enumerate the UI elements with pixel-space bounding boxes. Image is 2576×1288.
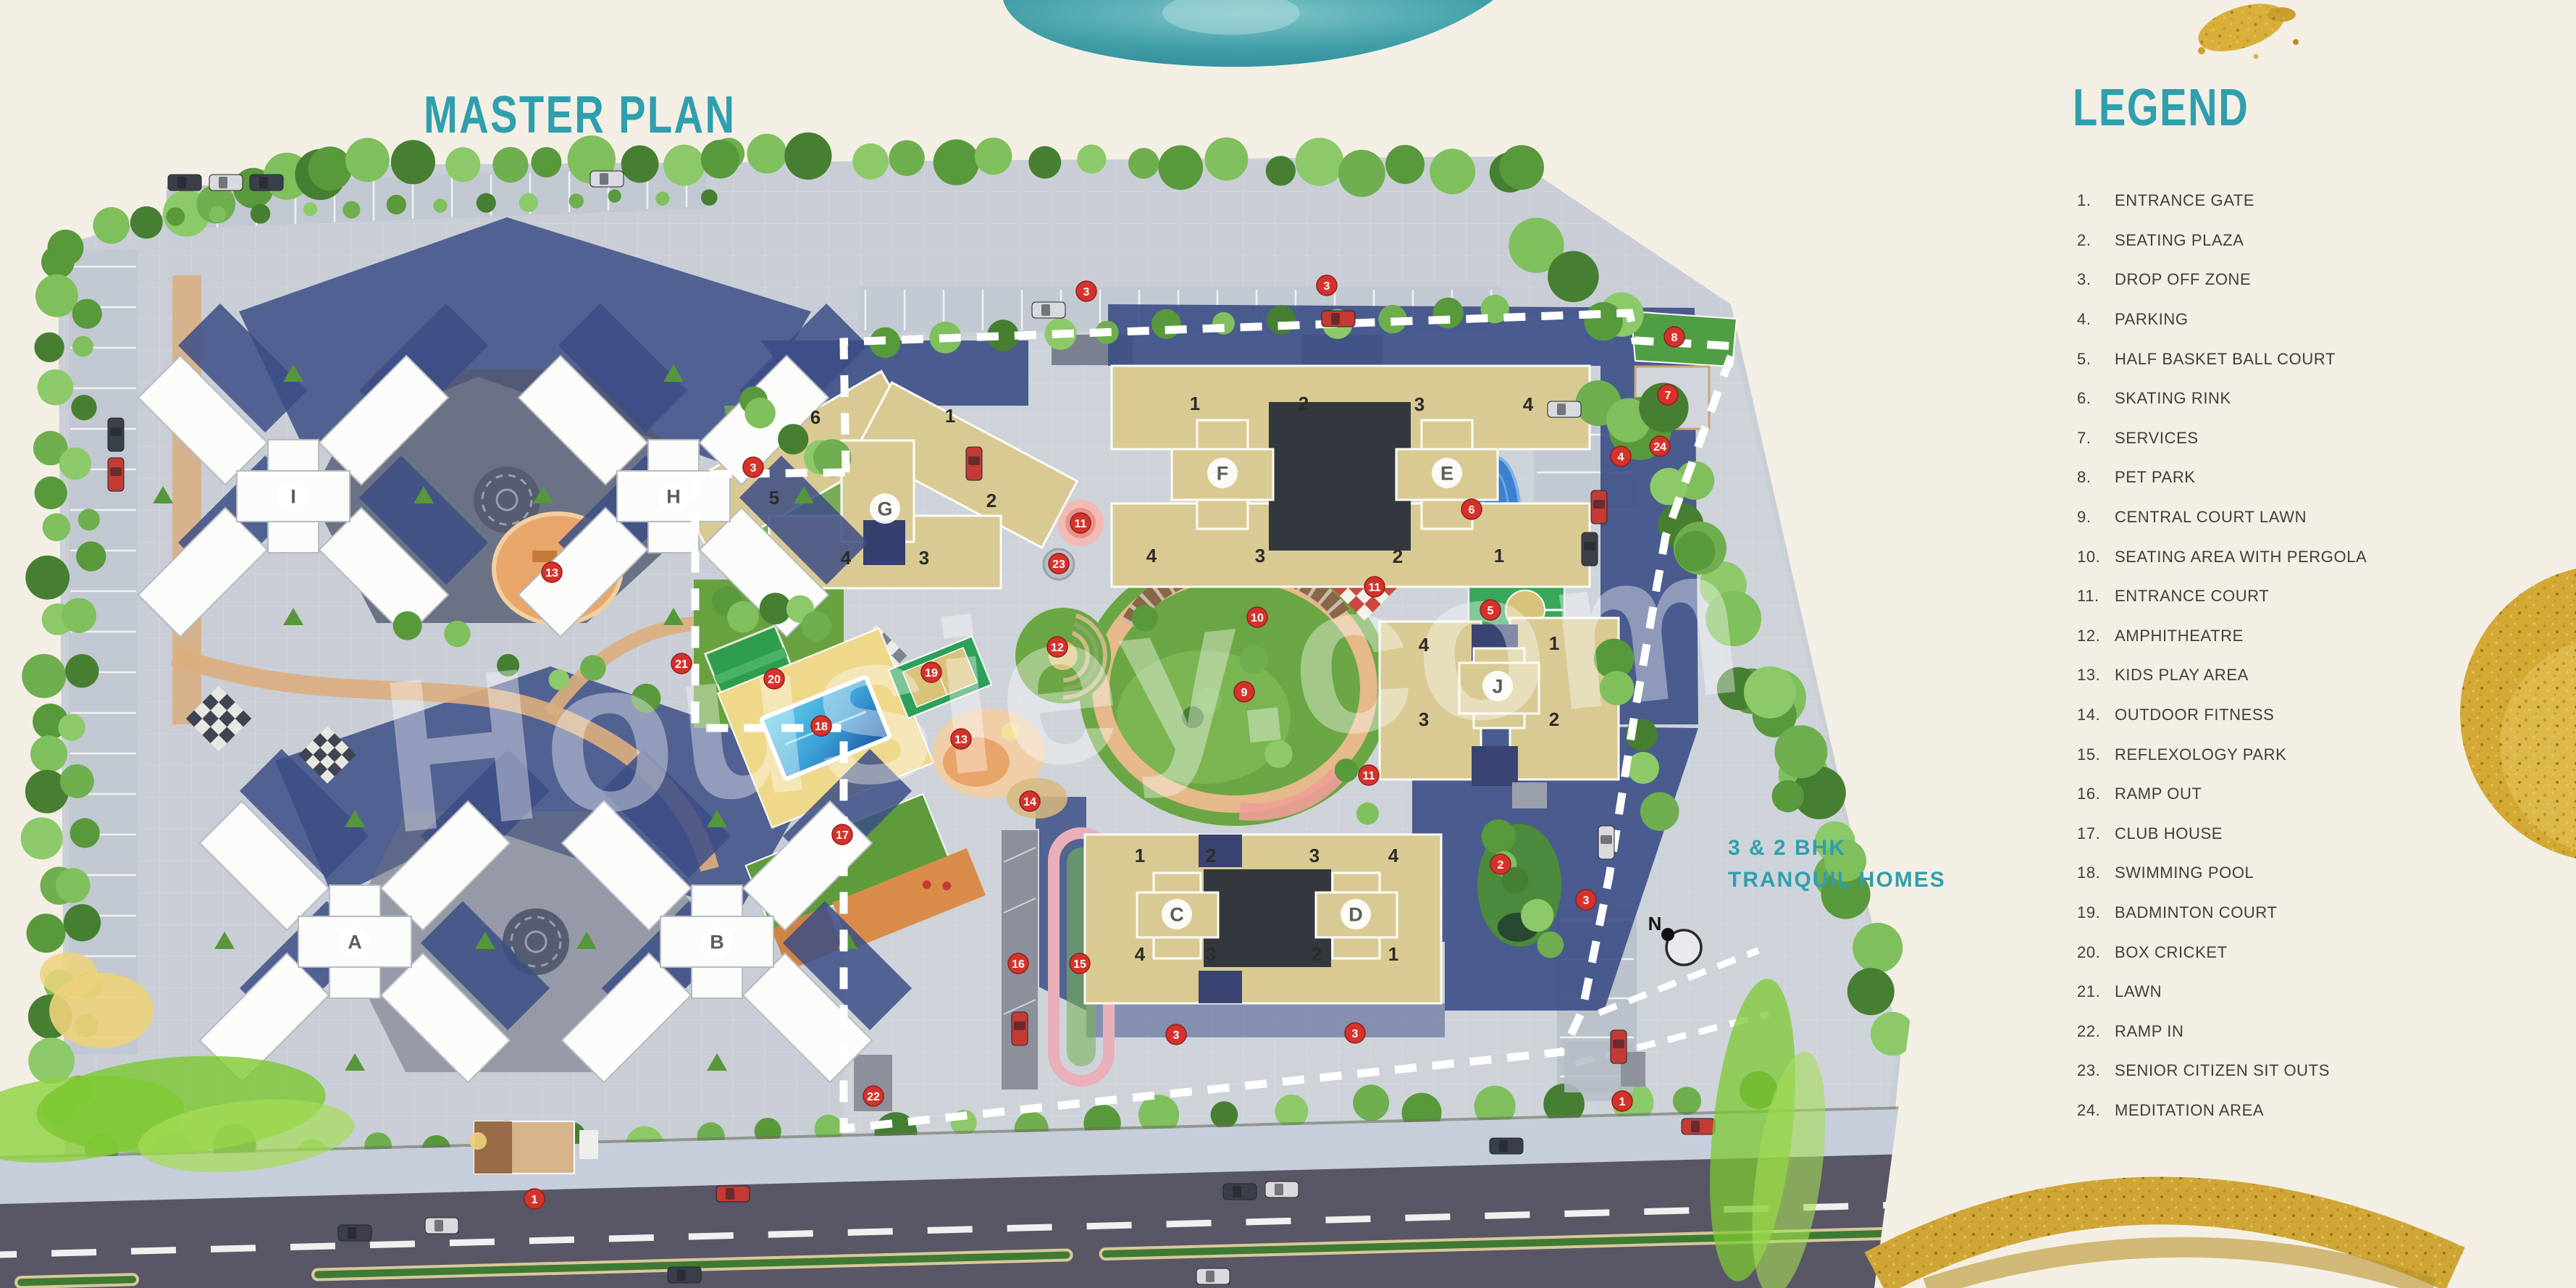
map-marker-13: 13 xyxy=(542,562,562,582)
map-marker-23: 23 xyxy=(1049,553,1069,574)
tree xyxy=(655,192,669,206)
tree xyxy=(21,817,63,859)
svg-text:11: 11 xyxy=(1075,518,1087,530)
tree xyxy=(1151,309,1181,339)
map-marker-14: 14 xyxy=(1020,791,1040,811)
map-marker-3: 3 xyxy=(1345,1023,1365,1043)
tree xyxy=(251,204,270,223)
svg-text:16: 16 xyxy=(1012,958,1025,971)
wing-number-label: 1 xyxy=(1135,845,1145,866)
car xyxy=(668,1267,701,1283)
svg-text:14: 14 xyxy=(1023,796,1036,808)
tree xyxy=(30,735,67,772)
tree xyxy=(22,654,66,698)
car xyxy=(1032,302,1065,318)
building-label-I: I xyxy=(278,481,309,511)
wing-number-label: 3 xyxy=(1419,708,1429,730)
tree xyxy=(25,556,70,600)
svg-text:2: 2 xyxy=(1498,859,1504,871)
tree xyxy=(1640,792,1679,831)
map-marker-13: 13 xyxy=(951,729,971,749)
tree xyxy=(975,138,1012,175)
car xyxy=(1223,1184,1256,1200)
tree xyxy=(70,818,100,848)
tree xyxy=(78,509,100,530)
tree xyxy=(35,275,78,317)
car xyxy=(250,175,283,191)
tree xyxy=(492,147,528,183)
tree xyxy=(28,1037,75,1084)
tree xyxy=(621,146,659,183)
building-label-B: B xyxy=(702,927,732,957)
tree xyxy=(93,207,130,244)
tree xyxy=(345,138,390,182)
tree xyxy=(1847,968,1895,1015)
car xyxy=(1265,1182,1299,1197)
map-marker-8: 8 xyxy=(1664,327,1685,347)
legend-panel: LEGEND 1.ENTRANCE GATE 2.SEATING PLAZA 3… xyxy=(2073,78,2551,138)
car xyxy=(425,1218,458,1234)
phase-label-line1: 3 & 2 BHK xyxy=(1728,836,1846,860)
wing-number-label: 3 xyxy=(1309,845,1320,866)
building-label-C: C xyxy=(1162,899,1192,929)
tree xyxy=(445,147,480,182)
legend-item: 4.PARKING xyxy=(2077,300,2541,340)
svg-text:I: I xyxy=(290,486,296,508)
wing-number-label: 1 xyxy=(1388,943,1398,965)
map-marker-24: 24 xyxy=(1650,436,1670,456)
car xyxy=(590,171,624,187)
svg-text:3: 3 xyxy=(1324,280,1330,293)
svg-text:19: 19 xyxy=(925,667,938,679)
legend-title: LEGEND xyxy=(2073,78,2446,138)
map-marker-9: 9 xyxy=(1234,682,1254,702)
legend-item: 23.SENIOR CITIZEN SIT OUTS xyxy=(2077,1051,2541,1091)
car xyxy=(1196,1268,1230,1284)
tree xyxy=(56,868,91,903)
tree xyxy=(43,514,71,542)
wing-number-label: 5 xyxy=(769,487,779,509)
tree xyxy=(60,764,94,798)
tree xyxy=(1159,146,1204,191)
tree xyxy=(62,598,96,633)
map-marker-1: 1 xyxy=(1612,1091,1632,1111)
wing-number-label: 4 xyxy=(1135,943,1146,965)
map-marker-2: 2 xyxy=(1490,854,1511,874)
legend-item: 13.KIDS PLAY AREA xyxy=(2077,656,2541,695)
legend-item: 22.RAMP IN xyxy=(2077,1011,2541,1051)
map-marker-4: 4 xyxy=(1611,446,1631,467)
tree xyxy=(72,299,102,329)
car xyxy=(209,175,243,191)
svg-text:4: 4 xyxy=(1618,451,1624,464)
wing-number-label: 6 xyxy=(810,406,821,428)
tree xyxy=(59,448,91,480)
wing-number-label: 2 xyxy=(1393,545,1403,567)
map-marker-22: 22 xyxy=(863,1086,884,1106)
map-marker-3: 3 xyxy=(743,457,763,477)
svg-text:12: 12 xyxy=(1051,642,1064,654)
wing-number-label: 1 xyxy=(945,405,955,427)
tree xyxy=(1673,1087,1701,1115)
wing-number-label: 4 xyxy=(1523,393,1534,415)
legend-item: 20.BOX CRICKET xyxy=(2077,932,2541,972)
tree xyxy=(477,193,496,213)
svg-text:15: 15 xyxy=(1073,958,1086,971)
legend-item: 6.SKATING RINK xyxy=(2077,379,2541,419)
tree xyxy=(1385,145,1425,184)
tree xyxy=(1205,138,1249,181)
car xyxy=(716,1186,750,1202)
svg-text:24: 24 xyxy=(1653,441,1666,453)
tree xyxy=(27,913,66,953)
tree xyxy=(778,424,808,454)
tree xyxy=(1266,156,1296,185)
svg-text:1: 1 xyxy=(532,1194,538,1206)
legend-item: 24.MEDITATION AREA xyxy=(2077,1091,2541,1131)
tree xyxy=(1296,138,1344,186)
building-label-A: A xyxy=(340,927,370,957)
tree xyxy=(130,206,163,239)
master-plan-page: Housiey.com N 3 & 2 BHK TRANQUIL HOMES 6… xyxy=(0,0,2576,1288)
compass-n-label: N xyxy=(1648,913,1662,934)
map-marker-19: 19 xyxy=(921,662,941,682)
map-marker-15: 15 xyxy=(1070,953,1090,974)
map-marker-3: 3 xyxy=(1576,890,1596,910)
map-marker-10: 10 xyxy=(1247,607,1267,627)
map-marker-16: 16 xyxy=(1008,953,1028,974)
legend-list: 1.ENTRANCE GATE 2.SEATING PLAZA 3.DROP O… xyxy=(2077,181,2541,1130)
wing-number-label: 3 xyxy=(1206,943,1216,965)
tree xyxy=(72,336,93,357)
svg-text:E: E xyxy=(1440,463,1453,485)
tree xyxy=(852,143,889,180)
legend-item: 3.DROP OFF ZONE xyxy=(2077,260,2541,300)
svg-text:3: 3 xyxy=(1352,1028,1359,1040)
car xyxy=(1598,826,1614,859)
phase-label-line2: TRANQUIL HOMES xyxy=(1728,868,1946,892)
map-marker-11: 11 xyxy=(1070,513,1091,533)
tree xyxy=(1853,923,1902,973)
tree xyxy=(38,369,74,406)
tree xyxy=(303,202,317,216)
wing-number-label: 3 xyxy=(1414,393,1425,415)
wing-number-label: 1 xyxy=(1494,545,1504,566)
page-title: MASTER PLAN xyxy=(424,85,736,145)
legend-item: 15.REFLEXOLOGY PARK xyxy=(2077,735,2541,774)
legend-item: 1.ENTRANCE GATE xyxy=(2077,181,2541,221)
building-label-E: E xyxy=(1432,458,1462,488)
tree xyxy=(308,146,352,191)
tree xyxy=(167,207,185,226)
map-marker-12: 12 xyxy=(1047,637,1067,657)
tree xyxy=(1584,302,1622,340)
tree xyxy=(433,198,447,212)
svg-text:11: 11 xyxy=(1369,582,1381,594)
legend-item: 18.SWIMMING POOL xyxy=(2077,853,2541,893)
tree xyxy=(71,395,96,420)
svg-text:13: 13 xyxy=(955,734,968,746)
tree xyxy=(608,190,621,203)
tree xyxy=(1499,145,1544,190)
car xyxy=(1548,401,1581,417)
wing-number-label: 2 xyxy=(1299,393,1309,414)
svg-text:6: 6 xyxy=(1469,504,1475,517)
svg-text:8: 8 xyxy=(1671,332,1678,344)
car xyxy=(1012,1012,1028,1045)
tree xyxy=(343,201,360,219)
wing-number-label: 2 xyxy=(1549,708,1559,730)
map-marker-3: 3 xyxy=(1076,281,1096,301)
wing-number-label: 1 xyxy=(1549,632,1559,654)
building-label-H: H xyxy=(658,481,689,511)
tree xyxy=(1430,149,1475,194)
legend-item: 17.CLUB HOUSE xyxy=(2077,814,2541,854)
map-marker-6: 6 xyxy=(1461,499,1482,519)
building-label-J: J xyxy=(1482,671,1513,701)
tree xyxy=(391,140,435,184)
legend-item: 5.HALF BASKET BALL COURT xyxy=(2077,339,2541,379)
tree xyxy=(519,193,538,212)
svg-text:3: 3 xyxy=(1083,286,1090,298)
wing-number-label: 4 xyxy=(841,547,852,569)
map-marker-17: 17 xyxy=(832,824,852,845)
tree xyxy=(41,246,75,279)
tree xyxy=(76,541,106,571)
car xyxy=(1611,1030,1627,1063)
tree xyxy=(1772,780,1804,812)
wing-number-label: 3 xyxy=(919,547,929,569)
map-marker-1: 1 xyxy=(524,1189,545,1209)
tree xyxy=(889,141,924,176)
building-label-D: D xyxy=(1341,899,1371,929)
svg-text:20: 20 xyxy=(768,674,781,686)
tree xyxy=(744,398,776,429)
tree xyxy=(701,189,718,206)
map-marker-5: 5 xyxy=(1480,600,1501,620)
car xyxy=(338,1225,372,1241)
building-label-G: G xyxy=(870,493,900,524)
tree xyxy=(209,206,226,222)
svg-text:J: J xyxy=(1492,676,1503,698)
svg-text:H: H xyxy=(666,486,681,508)
svg-text:A: A xyxy=(348,932,362,953)
tree xyxy=(1353,1084,1389,1121)
map-marker-3: 3 xyxy=(1317,275,1337,296)
wing-number-label: 4 xyxy=(1146,545,1157,566)
tree xyxy=(34,333,64,362)
wing-number-label: 2 xyxy=(1206,845,1216,866)
building-label-F: F xyxy=(1207,458,1238,488)
svg-text:G: G xyxy=(877,498,892,520)
tree xyxy=(1482,819,1516,853)
car xyxy=(108,418,124,451)
tree xyxy=(747,134,787,174)
svg-text:9: 9 xyxy=(1241,687,1248,699)
legend-item: 11.ENTRANCE COURT xyxy=(2077,577,2541,616)
tree xyxy=(35,477,67,509)
tree xyxy=(387,195,406,214)
legend-item: 9.CENTRAL COURT LAWN xyxy=(2077,498,2541,538)
tree xyxy=(65,654,98,687)
wing-number-label: 4 xyxy=(1419,634,1430,656)
svg-text:21: 21 xyxy=(675,658,688,671)
tree xyxy=(569,193,584,208)
tree xyxy=(1356,803,1379,825)
tree xyxy=(1028,146,1061,179)
tree xyxy=(1128,148,1159,179)
car xyxy=(1682,1118,1715,1134)
svg-text:17: 17 xyxy=(836,829,849,842)
tree xyxy=(64,904,101,941)
map-marker-11: 11 xyxy=(1359,765,1379,785)
legend-item: 16.RAMP OUT xyxy=(2077,774,2541,814)
svg-text:11: 11 xyxy=(1363,770,1375,782)
tree xyxy=(1774,725,1827,778)
tree xyxy=(701,140,740,179)
map-marker-7: 7 xyxy=(1658,385,1678,405)
wing-number-label: 1 xyxy=(1190,393,1200,414)
tree xyxy=(934,139,979,185)
legend-item: 19.BADMINTON COURT xyxy=(2077,893,2541,933)
tree xyxy=(1521,899,1553,932)
tree xyxy=(531,147,561,177)
svg-text:13: 13 xyxy=(545,567,558,580)
svg-text:3: 3 xyxy=(1583,895,1590,907)
car xyxy=(1490,1138,1523,1154)
legend-item: 10.SEATING AREA WITH PERGOLA xyxy=(2077,537,2541,577)
map-marker-3: 3 xyxy=(1166,1024,1186,1045)
svg-text:D: D xyxy=(1348,904,1363,926)
map-marker-20: 20 xyxy=(764,669,784,689)
svg-text:23: 23 xyxy=(1052,559,1065,571)
car xyxy=(966,447,982,480)
svg-text:3: 3 xyxy=(750,462,757,474)
legend-item: 21.LAWN xyxy=(2077,972,2541,1012)
legend-item: 12.AMPHITHEATRE xyxy=(2077,616,2541,656)
svg-text:5: 5 xyxy=(1488,605,1494,617)
svg-text:F: F xyxy=(1217,463,1229,485)
svg-text:7: 7 xyxy=(1665,390,1671,402)
wing-number-label: 4 xyxy=(1388,845,1399,866)
svg-text:C: C xyxy=(1170,904,1184,926)
svg-text:3: 3 xyxy=(1173,1029,1180,1042)
tree xyxy=(663,145,705,186)
car xyxy=(1322,311,1355,327)
svg-text:22: 22 xyxy=(867,1091,880,1103)
tree xyxy=(1537,932,1564,958)
wing-number-label: 2 xyxy=(986,490,997,511)
legend-item: 8.PET PARK xyxy=(2077,458,2541,498)
wing-number-label: 2 xyxy=(1312,943,1322,965)
map-marker-11: 11 xyxy=(1364,577,1385,597)
svg-text:1: 1 xyxy=(1619,1096,1626,1108)
svg-text:18: 18 xyxy=(815,721,828,733)
legend-item: 7.SERVICES xyxy=(2077,419,2541,459)
svg-text:B: B xyxy=(710,932,724,953)
tree xyxy=(1548,251,1599,303)
car xyxy=(168,175,201,191)
tree xyxy=(58,714,85,741)
tree xyxy=(1267,305,1296,334)
tree xyxy=(1338,150,1385,197)
svg-text:10: 10 xyxy=(1251,612,1264,624)
car xyxy=(108,458,124,491)
tree xyxy=(784,133,831,180)
legend-item: 2.SEATING PLAZA xyxy=(2077,221,2541,261)
wing-number-label: 3 xyxy=(1255,545,1265,566)
map-marker-21: 21 xyxy=(671,653,692,674)
tree xyxy=(1077,145,1106,174)
legend-item: 14.OUTDOOR FITNESS xyxy=(2077,695,2541,735)
map-marker-18: 18 xyxy=(811,716,831,736)
